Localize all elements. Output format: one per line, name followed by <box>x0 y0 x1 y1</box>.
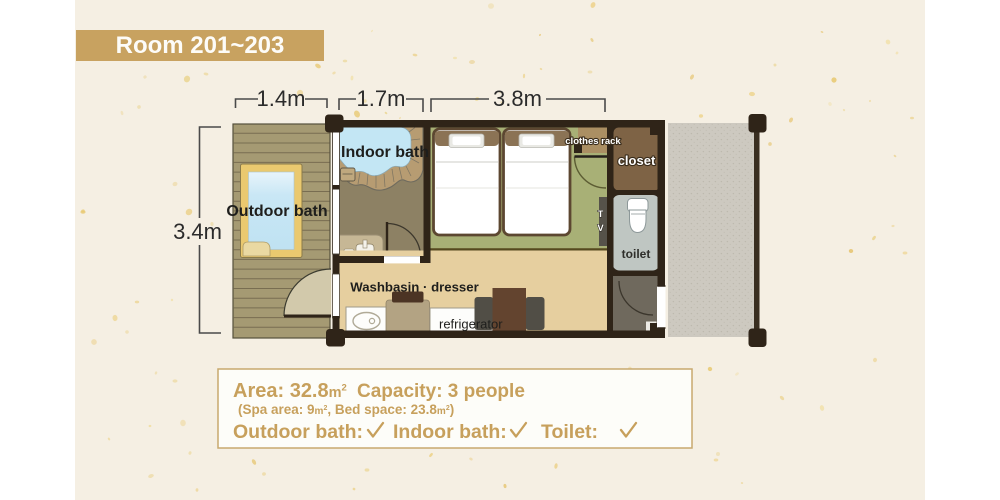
svg-text:Room 201~203: Room 201~203 <box>116 32 285 59</box>
svg-text:3.8m: 3.8m <box>493 86 542 111</box>
svg-text:Washbasin · dresser: Washbasin · dresser <box>350 280 479 295</box>
svg-text:Outdoor bath:: Outdoor bath: <box>233 421 363 443</box>
svg-text:3.4m: 3.4m <box>173 219 222 244</box>
svg-text:(Spa area: 9m2, Bed space: 23: (Spa area: 9m2, Bed space: 23.8m2) <box>238 402 454 417</box>
svg-text:Outdoor bath: Outdoor bath <box>226 203 327 220</box>
svg-text:T: T <box>598 209 604 220</box>
svg-text:V: V <box>597 223 604 234</box>
svg-text:Indoor bath:: Indoor bath: <box>393 421 507 443</box>
svg-text:Capacity: 3 people: Capacity: 3 people <box>357 381 525 402</box>
svg-text:Toilet:: Toilet: <box>541 421 598 443</box>
svg-text:clothes rack: clothes rack <box>565 136 621 147</box>
svg-text:Indoor bath: Indoor bath <box>341 144 429 161</box>
svg-text:1.7m: 1.7m <box>357 86 406 111</box>
svg-text:toilet: toilet <box>622 247 651 261</box>
svg-text:1.4m: 1.4m <box>257 86 306 111</box>
svg-text:refrigerator: refrigerator <box>439 317 503 332</box>
svg-text:closet: closet <box>618 153 656 168</box>
